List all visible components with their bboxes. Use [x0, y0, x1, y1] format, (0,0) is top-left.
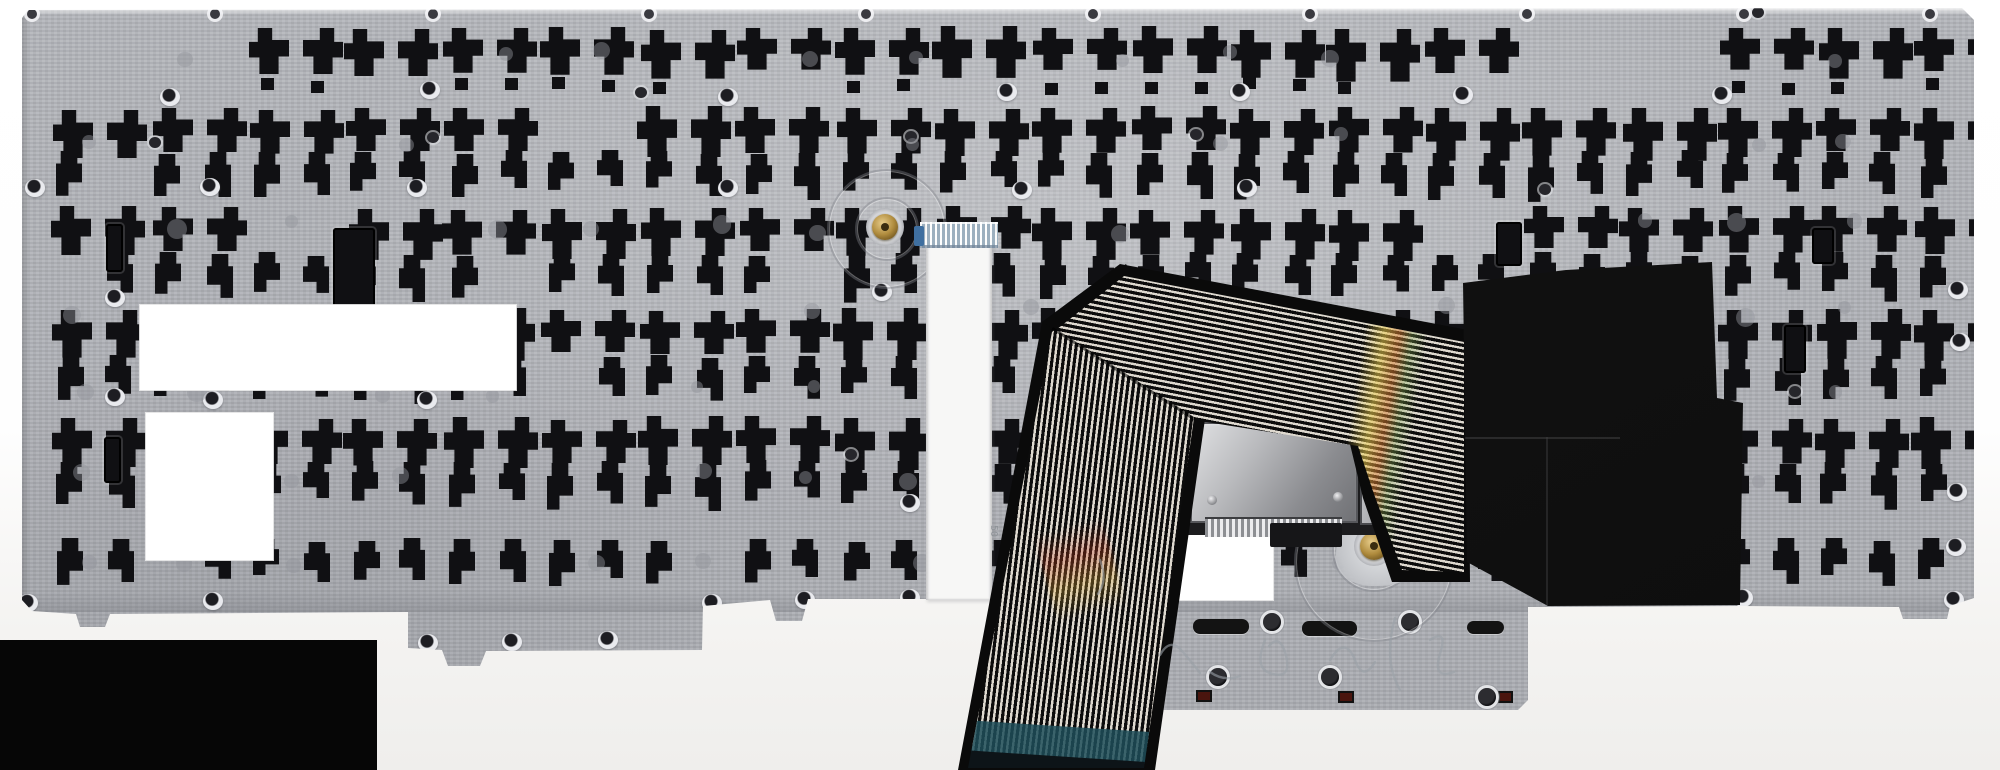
- key-clip-cutout: [53, 110, 93, 158]
- key-clip-cutout: [547, 463, 573, 510]
- key-clip-cutout: [841, 357, 867, 393]
- key-clip-cutout: [1187, 152, 1213, 199]
- adhesive-dot: [593, 42, 610, 59]
- key-clip-cutout: [891, 108, 931, 154]
- key-clip-cutout: [56, 151, 82, 196]
- key-clip-cutout: [1380, 29, 1420, 82]
- key-clip-cutout: [303, 462, 329, 498]
- adhesive-dot: [176, 555, 192, 571]
- key-clip-cutout: [452, 154, 478, 197]
- plate-left-edge-shade: [22, 10, 27, 605]
- adhesive-dot: [187, 383, 206, 402]
- key-clip-cutout: [889, 28, 929, 75]
- key-clip-cutout: [1383, 107, 1423, 153]
- white-label-blank: [146, 413, 273, 560]
- rivet: [502, 633, 522, 651]
- alignment-hole: [1305, 9, 1315, 19]
- key-clip-cutout: [1136, 541, 1162, 579]
- key-clip-cutout: [844, 255, 870, 303]
- key-clip-cutout: [1381, 153, 1407, 196]
- embossed-ring: [1332, 508, 1416, 592]
- adhesive-dot: [588, 555, 604, 571]
- key-clip-cutout: [399, 538, 425, 580]
- rivet: [1733, 589, 1753, 607]
- key-clip-cutout: [548, 152, 574, 190]
- key-clip-cutout: [1918, 538, 1944, 579]
- key-clip-cutout: [841, 461, 867, 503]
- key-clip-cutout: [1480, 311, 1520, 361]
- key-clip-cutout: [1231, 209, 1271, 260]
- keyboard-backplate-photo: 50: [0, 0, 2000, 770]
- key-clip-cutout: [1672, 420, 1712, 462]
- key-clip-cutout: [1623, 108, 1663, 161]
- white-label-blank: [140, 305, 516, 390]
- key-clip-cutout: [1331, 253, 1357, 296]
- key-clip-cutout: [1870, 108, 1910, 151]
- key-clip-cutout: [691, 106, 731, 157]
- key-clip-cutout: [1869, 419, 1909, 468]
- adhesive-dot: [1105, 303, 1124, 322]
- handwriting-scribbles: [0, 0, 2000, 770]
- key-clip-cutout: [1087, 416, 1127, 464]
- key-clip-cutout: [1185, 539, 1211, 582]
- key-clip-cutout: [1724, 539, 1750, 575]
- key-clip-cutout: [302, 356, 328, 397]
- key-clip-cutout: [105, 206, 145, 255]
- key-clip-cutout: [497, 28, 537, 73]
- rivet: [203, 592, 223, 610]
- key-clip-cutout: [695, 208, 735, 256]
- alignment-hole: [1088, 9, 1098, 19]
- adhesive-dot: [1213, 136, 1228, 151]
- key-clip-cutout: [1478, 541, 1504, 581]
- key-clip-cutout: [500, 539, 526, 582]
- key-clip-cutout: [599, 357, 625, 396]
- adhesive-dot: [1521, 550, 1536, 565]
- key-clip-cutout: [498, 108, 538, 151]
- key-clip-cutout: [991, 151, 1017, 187]
- adhesive-dot: [1334, 127, 1348, 141]
- rivet: [905, 131, 917, 142]
- key-clip-cutout: [1722, 153, 1748, 193]
- key-clip-cutout: [790, 309, 830, 353]
- key-clip-cutout: [248, 419, 288, 464]
- embossed-ring: [1294, 482, 1454, 642]
- key-clip-cutout: [302, 419, 342, 464]
- key-clip-cutout: [1135, 461, 1161, 499]
- flex-ribbon-upper-arm: [0, 0, 2000, 770]
- key-clip-cutout: [1620, 310, 1660, 355]
- key-clip-cutout: [152, 309, 192, 358]
- rivet: [1012, 181, 1032, 199]
- adhesive-dot: [486, 389, 500, 403]
- key-clip-cutout: [1426, 108, 1466, 161]
- key-clip-cutout: [940, 357, 966, 398]
- key-clip-cutout: [1283, 151, 1309, 193]
- key-clip-cutout: [1383, 462, 1409, 509]
- key-clip-cutout: [1243, 77, 1256, 89]
- key-clip-cutout: [745, 539, 771, 583]
- screw-washer: [866, 208, 904, 246]
- key-clip-cutout: [887, 308, 927, 360]
- rivet: [598, 631, 618, 649]
- ribbon-teal-tip: [0, 0, 2000, 770]
- key-clip-cutout: [1772, 310, 1812, 359]
- key-clip-cutout: [207, 254, 233, 298]
- adhesive-dot: [1829, 385, 1842, 398]
- key-clip-cutout: [203, 461, 229, 508]
- adhesive-dot: [913, 554, 931, 572]
- metal-splat: [1336, 518, 1432, 586]
- key-clip-cutout: [1976, 82, 1989, 94]
- key-clip-cutout: [594, 27, 634, 75]
- adhesive-dot: [1116, 54, 1129, 67]
- key-clip-cutout: [1914, 28, 1954, 71]
- key-clip-cutout: [1333, 152, 1359, 197]
- key-clip-cutout: [1774, 28, 1814, 70]
- module-cavity: [1175, 415, 1445, 535]
- key-clip-cutout: [1234, 154, 1260, 200]
- key-clip-cutout: [1921, 464, 1947, 501]
- key-clip-cutout: [499, 463, 525, 500]
- key-clip-cutout: [1869, 152, 1895, 194]
- key-clip-cutout: [1577, 311, 1617, 360]
- key-clip-cutout: [736, 416, 776, 463]
- key-clip-cutout: [1821, 538, 1847, 575]
- key-clip-cutout: [52, 310, 92, 358]
- key-clip-cutout: [1775, 464, 1801, 503]
- key-clip-cutout: [203, 354, 229, 391]
- key-clip-cutout: [1479, 28, 1519, 73]
- key-clip-cutout: [254, 152, 280, 197]
- key-clip-cutout: [58, 354, 84, 400]
- key-clip-cutout: [697, 358, 723, 401]
- key-clip-cutout: [1478, 464, 1504, 502]
- key-clip-cutout: [789, 107, 829, 153]
- key-clip-cutout: [153, 108, 193, 152]
- ffc-connector-nub: [914, 226, 924, 246]
- key-clip-cutout: [349, 209, 389, 260]
- key-clip-cutout: [1867, 206, 1907, 252]
- key-clip-cutout: [697, 255, 723, 295]
- board-connector-comb: [1205, 517, 1342, 537]
- key-clip-cutout: [1578, 206, 1618, 248]
- adhesive-dot: [696, 463, 712, 479]
- key-clip-cutout: [253, 355, 279, 399]
- key-clip-cutout: [304, 542, 330, 582]
- key-clip-cutout: [441, 308, 481, 361]
- small-screw: [1333, 492, 1343, 502]
- key-clip-cutout: [835, 28, 875, 75]
- key-clip-cutout: [1773, 538, 1799, 584]
- key-clip-cutout: [1774, 252, 1800, 290]
- key-clip-cutout: [1088, 358, 1114, 396]
- key-clip-cutout: [1577, 463, 1603, 505]
- key-clip-cutout: [1326, 418, 1366, 467]
- key-clip-cutout: [1579, 254, 1605, 301]
- rivet: [149, 137, 161, 148]
- key-clip-cutout: [451, 356, 477, 400]
- key-clip-cutout: [1432, 356, 1458, 404]
- adhesive-dot: [375, 387, 391, 403]
- key-clip-cutout: [986, 26, 1026, 78]
- key-clip-cutout: [794, 356, 820, 399]
- ribbon-warm-reflection: [1035, 517, 1126, 622]
- key-clip-cutout: [496, 210, 536, 255]
- key-clip-cutout: [940, 253, 966, 290]
- key-clip-cutout: [1530, 464, 1556, 502]
- key-clip-cutout: [1718, 108, 1758, 157]
- key-clip-cutout: [1914, 108, 1954, 159]
- round-hole: [1321, 668, 1339, 686]
- mylar-seam: [1463, 437, 1620, 439]
- key-clip-cutout: [890, 208, 930, 256]
- key-clip-cutout: [449, 462, 475, 507]
- key-clip-cutout: [1086, 208, 1126, 260]
- key-clip-cutout: [1526, 540, 1552, 581]
- adhesive-dot: [1838, 301, 1851, 314]
- key-clip-cutout: [1775, 358, 1801, 405]
- key-clip-cutout: [989, 540, 1015, 578]
- key-clip-cutout: [794, 461, 820, 498]
- key-clip-cutout: [1480, 108, 1520, 161]
- key-clip-cutout: [1032, 108, 1072, 153]
- adhesive-dot: [909, 51, 922, 64]
- key-clip-cutout: [1230, 418, 1270, 468]
- scribble-mark: [1210, 672, 1240, 678]
- rivet: [420, 81, 440, 99]
- adhesive-dot: [1415, 546, 1430, 561]
- key-clip-cutout: [1718, 419, 1758, 464]
- round-hole: [1209, 668, 1227, 686]
- key-clip-cutout: [1045, 83, 1058, 95]
- key-clip-cutout: [1187, 26, 1227, 73]
- key-clip-cutout: [1329, 107, 1369, 153]
- key-clip-cutout: [696, 154, 722, 196]
- rivet: [407, 179, 427, 197]
- key-clip-cutout: [1968, 28, 2000, 71]
- key-clip-cutout: [1965, 417, 2000, 469]
- key-clip-cutout: [1720, 28, 1760, 70]
- key-clip-cutout: [744, 256, 770, 293]
- key-clip-cutout: [1576, 108, 1616, 156]
- key-clip-cutout: [1677, 108, 1717, 161]
- key-clip-cutout: [1723, 464, 1749, 506]
- scribble-mark: [1160, 645, 1200, 673]
- rivet: [900, 589, 920, 607]
- key-clip-cutout: [989, 356, 1015, 393]
- key-clip-cutout: [1523, 416, 1563, 460]
- rivet: [1539, 184, 1551, 195]
- key-clip-cutout: [57, 538, 83, 585]
- adhesive-dot: [802, 51, 818, 67]
- adhesive-dot: [392, 467, 409, 484]
- key-clip-cutout: [444, 108, 484, 151]
- key-clip-cutout: [694, 311, 734, 354]
- key-clip-cutout: [147, 418, 187, 470]
- key-clip-cutout: [934, 419, 974, 464]
- brass-screw: [872, 214, 898, 240]
- key-clip-cutout: [350, 152, 376, 191]
- key-clip-cutout: [261, 78, 274, 90]
- key-clip-cutout: [640, 311, 680, 354]
- key-clip-cutout: [744, 356, 770, 393]
- key-clip-cutout: [1968, 310, 2000, 361]
- key-clip-cutout: [1577, 416, 1617, 460]
- key-clip-cutout: [1911, 417, 1951, 469]
- key-clip-cutout: [254, 252, 280, 292]
- key-clip-cutout: [498, 417, 538, 468]
- trackpoint-flex-orange: [1176, 425, 1198, 520]
- key-clip-cutout: [1095, 82, 1108, 94]
- key-clip-cutout: [1676, 463, 1702, 505]
- vertical-slot: [1784, 325, 1806, 373]
- adhesive-dot: [1023, 299, 1040, 316]
- adhesive-dot: [1308, 300, 1323, 315]
- flex-ribbon-lower-arm: [0, 0, 2000, 770]
- key-clip-cutout: [740, 208, 780, 251]
- key-clip-cutout: [1823, 358, 1849, 399]
- key-clip-cutout: [1233, 356, 1259, 400]
- ribbon-miter-seam: [1051, 327, 1195, 421]
- key-clip-cutout: [1132, 308, 1172, 356]
- key-clip-cutout: [1724, 357, 1750, 401]
- stabilizer-bar-slot: [1467, 621, 1504, 634]
- key-clip-cutout: [540, 27, 580, 75]
- white-label-blank: [1167, 527, 1273, 600]
- key-clip-cutout: [1675, 358, 1701, 402]
- key-clip-cutout: [1130, 210, 1170, 255]
- key-clip-cutout: [106, 418, 146, 467]
- key-clip-cutout: [443, 28, 483, 73]
- key-clip-cutout: [1815, 419, 1855, 468]
- key-clip-cutout: [1285, 255, 1311, 295]
- key-clip-cutout: [596, 420, 636, 463]
- key-clip-cutout: [1186, 308, 1226, 356]
- key-clip-cutout: [1131, 419, 1171, 469]
- rivet: [635, 87, 647, 98]
- alignment-hole: [1739, 9, 1749, 19]
- key-clip-cutout: [452, 256, 478, 298]
- adhesive-dot: [77, 384, 93, 400]
- key-clip-cutout: [107, 110, 147, 158]
- rivet: [1789, 386, 1801, 397]
- key-clip-cutout: [154, 356, 180, 396]
- key-clip-cutout: [1673, 208, 1713, 252]
- key-clip-cutout: [1087, 28, 1127, 70]
- scribble-mark: [1330, 648, 1375, 672]
- red-marker-square: [1338, 691, 1354, 703]
- key-clip-cutout: [1039, 542, 1065, 587]
- key-clip-cutout: [1329, 210, 1369, 261]
- adhesive-dot: [284, 474, 298, 488]
- key-clip-cutout: [1087, 538, 1113, 586]
- adhesive-dot: [1625, 467, 1645, 487]
- adhesive-dot: [1736, 308, 1755, 327]
- key-clip-cutout: [1479, 420, 1519, 471]
- key-clip-cutout: [1032, 308, 1072, 356]
- key-clip-cutout: [891, 540, 917, 580]
- key-clip-cutout: [1380, 418, 1420, 467]
- key-clip-cutout: [1968, 108, 2000, 159]
- key-clip-cutout: [1426, 311, 1466, 361]
- key-clip-cutout: [344, 29, 384, 76]
- key-clip-cutout: [207, 207, 247, 251]
- key-clip-cutout: [641, 208, 681, 256]
- rivet: [718, 88, 738, 106]
- key-clip-cutout: [455, 78, 468, 90]
- key-clip-cutout: [1326, 29, 1366, 82]
- key-clip-cutout: [1920, 358, 1946, 396]
- adhesive-dot: [906, 138, 919, 151]
- key-clip-cutout: [1330, 354, 1356, 395]
- key-clip-cutout: [1038, 150, 1064, 187]
- key-clip-cutout: [1285, 354, 1311, 392]
- key-clip-cutout: [637, 106, 677, 157]
- key-clip-cutout: [1914, 310, 1954, 361]
- key-clip-cutout: [542, 420, 582, 463]
- key-clip-cutout: [1432, 255, 1458, 291]
- rivet: [1947, 483, 1967, 501]
- alignment-hole: [861, 9, 871, 19]
- key-clip-cutout: [449, 539, 475, 584]
- adhesive-dot: [63, 306, 82, 325]
- key-clip-cutout: [638, 416, 678, 465]
- key-clip-cutout: [1283, 462, 1309, 507]
- key-clip-cutout: [893, 461, 919, 504]
- key-clip-cutout: [1969, 207, 2000, 254]
- key-clip-cutout: [1138, 255, 1164, 295]
- key-clip-cutout: [501, 150, 527, 188]
- key-clip-cutout: [990, 464, 1016, 504]
- key-clip-cutout: [646, 355, 672, 395]
- key-clip-cutout: [1817, 309, 1857, 359]
- adhesive-dot: [1727, 213, 1746, 232]
- key-clip-cutout: [1293, 79, 1306, 91]
- key-clip-cutout: [988, 310, 1028, 360]
- key-clip-cutout: [397, 419, 437, 466]
- adhesive-dot: [899, 473, 917, 491]
- rivet: [1944, 591, 1964, 609]
- key-clip-cutout: [505, 78, 518, 90]
- key-clip-cutout: [646, 151, 672, 188]
- key-clip-cutout: [1530, 252, 1556, 290]
- brass-screw: [1360, 532, 1388, 560]
- adhesive-dot: [1533, 386, 1547, 400]
- key-clip-cutout: [1038, 460, 1064, 503]
- key-clip-cutout: [1184, 210, 1224, 255]
- key-clip-cutout: [897, 79, 910, 91]
- key-clip-cutout: [891, 253, 917, 293]
- key-clip-cutout: [1677, 256, 1703, 298]
- key-clip-cutout: [354, 355, 380, 400]
- adhesive-dot: [192, 305, 204, 317]
- key-clip-cutout: [1086, 153, 1112, 198]
- ffc-connector: [920, 222, 998, 248]
- key-clip-cutout: [303, 28, 343, 74]
- alignment-hole: [1522, 9, 1532, 19]
- rivet: [795, 591, 815, 609]
- key-clip-cutout: [1674, 310, 1714, 355]
- trackpoint-module: [1190, 422, 1358, 523]
- key-clip-cutout: [1871, 356, 1897, 399]
- key-clip-cutout: [794, 153, 820, 200]
- key-clip-cutout: [1133, 26, 1173, 73]
- screw-washer: [1354, 526, 1394, 566]
- key-clip-cutout: [746, 154, 772, 194]
- key-clip-cutout: [1675, 538, 1701, 583]
- key-clip-cutout: [1145, 82, 1158, 94]
